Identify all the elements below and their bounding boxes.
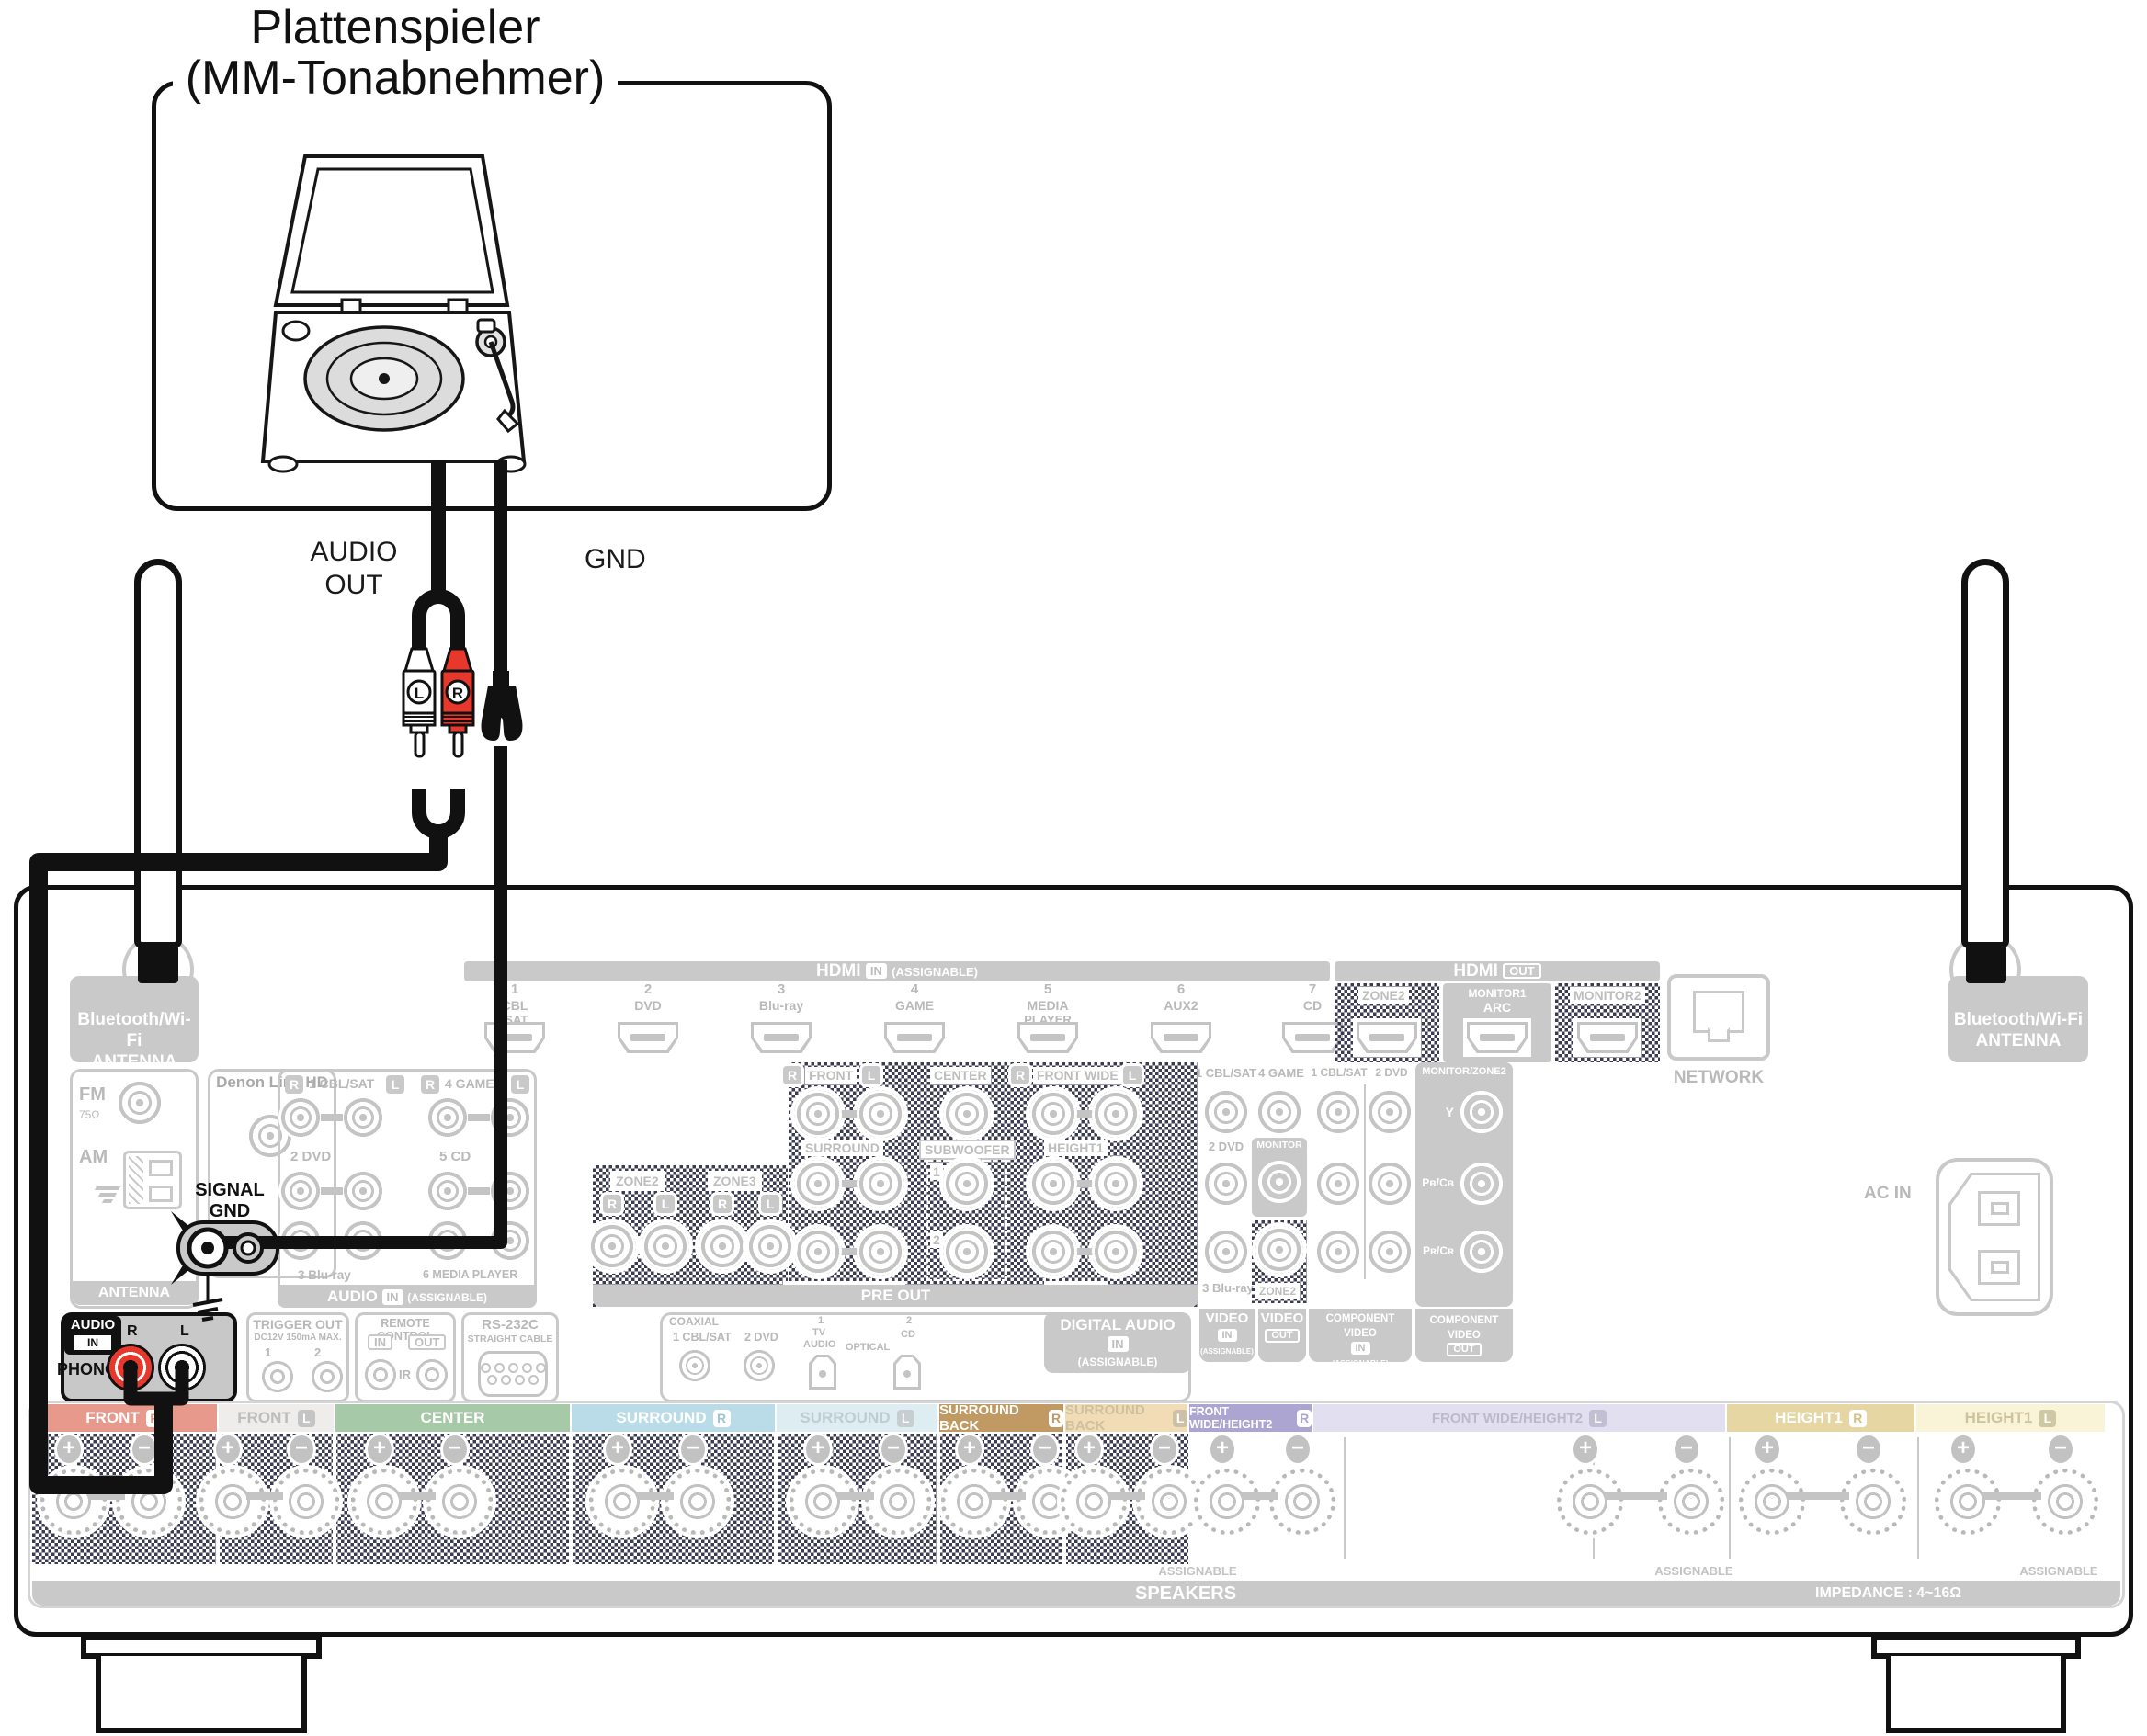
audio-jack — [488, 1169, 532, 1213]
speakers-bar — [32, 1581, 2120, 1606]
zone-jack — [588, 1222, 636, 1270]
hdmi-port-label: CBL — [464, 998, 565, 1013]
compvideo-jack — [1366, 1088, 1414, 1136]
hdmi-in-assignable: (ASSIGNABLE) — [892, 965, 978, 979]
am-terminal-hatch — [129, 1156, 143, 1204]
trigger-jack — [261, 1360, 294, 1393]
remote-jack — [364, 1358, 397, 1391]
minus-mark: − — [443, 1435, 467, 1463]
video-zone2-label: ZONE2 — [1255, 1283, 1300, 1299]
audio-in2-label: 2 DVD — [290, 1149, 331, 1164]
optical-label: OPTICAL — [846, 1342, 890, 1353]
speaker-label-height1-r: HEIGHT1R — [1727, 1404, 1914, 1432]
preout-r-badge: R — [1011, 1066, 1029, 1084]
audio-jack — [426, 1219, 470, 1263]
bt-antenna-label-left: Bluetooth/Wi-Fi ANTENNA — [70, 976, 199, 1062]
optical-2-num: 2 — [906, 1315, 912, 1326]
antenna-base-right — [1966, 945, 2006, 983]
video-monitor-jack — [1255, 1158, 1303, 1206]
preout-jack — [1092, 1228, 1140, 1276]
antenna-rod-left — [134, 559, 182, 948]
video-monitor-label: MONITOR — [1252, 1138, 1307, 1152]
compvideo-pb-label: Pʙ/Cʙ — [1419, 1176, 1454, 1189]
video-game-label: 4 GAME — [1252, 1066, 1311, 1080]
hdmi-port-num: 1 — [478, 981, 551, 997]
video-jack — [1202, 1088, 1250, 1136]
minus-mark: − — [290, 1435, 313, 1463]
zone3-l-badge: L — [761, 1195, 779, 1213]
assignable-label: ASSIGNABLE — [1639, 1564, 1749, 1578]
audio-r-badge: R — [421, 1075, 439, 1094]
video-jack — [1255, 1088, 1303, 1136]
diagram-canvas: Plattenspieler (MM-Tonabnehmer) AUDIO OU… — [0, 0, 2147, 1736]
phono-audio-label: AUDIO — [64, 1316, 121, 1334]
hdmi-in-port-1 — [484, 1022, 545, 1053]
compvideo-in-tab: COMPONENT VIDEO IN (ASSIGNABLE) — [1309, 1309, 1412, 1362]
audio-l-badge: L — [511, 1075, 529, 1094]
hdmi-port-label: MEDIA — [997, 998, 1098, 1013]
preout-zone3-label: ZONE3 — [708, 1171, 762, 1191]
zone-jack — [699, 1222, 746, 1270]
optical-2-cd: CD — [901, 1329, 915, 1340]
phono-audio-tab: AUDIO IN — [64, 1316, 121, 1355]
rs232c-sub: STRAIGHT CABLE — [461, 1333, 559, 1345]
hdmi-in-port-4 — [884, 1022, 945, 1053]
compvideo-out-jack — [1458, 1160, 1505, 1208]
speaker-label-front-r: FRONTR — [32, 1404, 217, 1432]
coaxial-label: COAXIAL — [669, 1315, 719, 1328]
remote-in-badge: IN — [368, 1334, 392, 1350]
am-terminal-clip1 — [149, 1160, 173, 1176]
plus-mark: + — [57, 1435, 81, 1463]
hdmi-in-title: HDMI — [816, 961, 861, 981]
binding-post — [1136, 1469, 1202, 1535]
rca-plug-l: L — [403, 649, 435, 756]
am-terminal-clip2 — [149, 1186, 173, 1202]
compvideo-jack — [1314, 1228, 1362, 1276]
binding-post — [1269, 1469, 1335, 1535]
binding-post — [116, 1469, 182, 1535]
preout-jack — [857, 1160, 904, 1208]
binding-post — [40, 1469, 107, 1535]
hdmi-port-num: 6 — [1144, 981, 1218, 997]
audio-r-badge: R — [285, 1075, 303, 1094]
preout-height1-label: HEIGHT1 — [1044, 1140, 1108, 1156]
hdmi-out-port-zone2 — [1357, 1022, 1417, 1053]
plug-l-letter: L — [415, 685, 424, 702]
digital-audio-tab: DIGITAL AUDIO IN (ASSIGNABLE) — [1044, 1312, 1191, 1373]
plug-r-letter: R — [452, 685, 463, 702]
title-line2: (MM-Tonabnehmer) — [173, 51, 619, 105]
preout-l-badge: L — [1123, 1066, 1142, 1084]
binding-post — [351, 1469, 417, 1535]
zone2-l-badge: L — [656, 1195, 675, 1213]
trigger-2: 2 — [314, 1345, 321, 1359]
speaker-label-surround-l: SURROUNDL — [777, 1404, 937, 1432]
optical-port-1 — [809, 1355, 836, 1390]
remote-out-badge: OUT — [408, 1334, 446, 1350]
hdmi-out-arc-label: ARC — [1443, 1000, 1551, 1015]
audio-jack — [341, 1095, 385, 1140]
preout-jack — [1092, 1160, 1140, 1208]
preout-zone2-label: ZONE2 — [610, 1171, 665, 1191]
video-out-tab: VIDEO OUT — [1258, 1309, 1306, 1362]
phono-jack-l — [158, 1344, 206, 1391]
bt-antenna-label-right: Bluetooth/Wi-Fi ANTENNA — [1948, 976, 2088, 1062]
hdmi-out-title: HDMI — [1453, 961, 1498, 981]
optical-1-audio: AUDIO — [803, 1339, 835, 1350]
compvideo-y-label: Y — [1423, 1105, 1454, 1119]
speaker-label-fwh2-l: FRONT WIDE/HEIGHT2L — [1313, 1404, 1725, 1432]
audio-jack — [278, 1219, 323, 1263]
preout-jack — [1029, 1160, 1077, 1208]
binding-post — [790, 1469, 856, 1535]
fm-label: FM — [79, 1084, 106, 1106]
hdmi-in-port-5 — [1017, 1022, 1078, 1053]
subwoofer-1: 1 — [930, 1163, 943, 1180]
trigger-out-title: TRIGGER OUT — [246, 1317, 349, 1332]
plus-mark: + — [368, 1435, 392, 1463]
plus-mark: + — [1755, 1435, 1779, 1463]
minus-mark: − — [1286, 1435, 1310, 1463]
plus-mark: + — [1951, 1435, 1975, 1463]
binding-post — [273, 1469, 339, 1535]
audio-jack — [488, 1095, 532, 1140]
preout-jack — [857, 1090, 904, 1138]
impedance-label: IMPEDANCE : 4~16Ω — [1815, 1585, 1961, 1602]
zone2-r-badge: R — [603, 1195, 621, 1213]
remote-ir-label: IR — [399, 1367, 411, 1381]
optical-port-2 — [893, 1355, 921, 1390]
plus-mark: + — [216, 1435, 240, 1463]
compvideo-jack — [1366, 1228, 1414, 1276]
minus-mark: − — [1675, 1435, 1698, 1463]
binding-post — [665, 1469, 731, 1535]
coaxial-in1-label: 1 CBL/SAT — [673, 1331, 732, 1344]
minus-mark: − — [881, 1435, 905, 1463]
compvideo-in1-label: 1 CBL/SAT — [1305, 1066, 1373, 1079]
speaker-label-surround-back-r: SURROUND BACKR — [939, 1404, 1063, 1432]
turntable-box — [152, 81, 832, 511]
compvideo-out-jack — [1458, 1088, 1505, 1136]
hdmi-out-port-monitor2 — [1577, 1022, 1638, 1053]
preout-subwoofer-jack2 — [943, 1228, 991, 1276]
spade-ferrule — [493, 671, 509, 687]
audio-jack — [341, 1219, 385, 1263]
plus-mark: + — [806, 1435, 830, 1463]
assignable-label: ASSIGNABLE — [2004, 1564, 2114, 1578]
compvideo-jack — [1314, 1160, 1362, 1208]
antenna-rod-right — [1961, 559, 2009, 948]
compvideo-out-jack — [1458, 1228, 1505, 1276]
audio-jack — [278, 1095, 323, 1140]
binding-post — [1840, 1469, 1906, 1535]
binding-post — [1739, 1469, 1805, 1535]
speaker-label-height1-l: HEIGHT1L — [1916, 1404, 2105, 1432]
compvideo-out-mz-label: MONITOR/ZONE2 — [1415, 1066, 1513, 1077]
speaker-label-surround-back-l: SURROUND BACKL — [1065, 1404, 1187, 1432]
zone-jack — [746, 1222, 794, 1270]
hdmi-in-badge: IN — [866, 963, 887, 979]
compvideo-pr-label: Pʀ/Cʀ — [1419, 1244, 1454, 1257]
hdmi-port-label: DVD — [597, 998, 699, 1013]
binding-post — [1194, 1469, 1260, 1535]
audio-in6-label: 6 MEDIA PLAYER — [423, 1268, 517, 1281]
am-ground-icon — [92, 1184, 123, 1203]
plus-mark: + — [958, 1435, 982, 1463]
preout-subwoofer-label: SUBWOOFER — [919, 1140, 1016, 1160]
digital-in-badge: IN — [1108, 1336, 1129, 1352]
phono-in-badge: IN — [74, 1335, 111, 1350]
preout-jack — [857, 1228, 904, 1276]
phono-l-label: L — [180, 1323, 189, 1340]
minus-mark: − — [1153, 1435, 1176, 1463]
preout-surround-label: SURROUND — [801, 1140, 883, 1156]
binding-post — [1557, 1469, 1623, 1535]
minus-mark: − — [2049, 1435, 2073, 1463]
hdmi-out-monitor1-label: MONITOR1 — [1443, 987, 1551, 1000]
optical-1-num: 1 — [818, 1315, 824, 1326]
audio-in4-label: 4 GAME — [445, 1076, 494, 1091]
plus-mark: + — [606, 1435, 630, 1463]
antenna-bar: ANTENNA — [73, 1281, 196, 1305]
hdmi-in-port-2 — [618, 1022, 678, 1053]
coaxial-in2-label: 2 DVD — [744, 1331, 778, 1344]
plus-mark: + — [1210, 1435, 1234, 1463]
fm-ohm-label: 75Ω — [79, 1108, 99, 1121]
hdmi-port-label: Blu-ray — [731, 998, 832, 1013]
hdmi-out-badge: OUT — [1503, 963, 1540, 979]
title-line1: Plattenspieler — [129, 2, 662, 53]
trigger-1: 1 — [265, 1345, 271, 1359]
minus-mark: − — [1857, 1435, 1880, 1463]
binding-post — [865, 1469, 931, 1535]
video-zone2-jack — [1255, 1226, 1303, 1274]
rca-plug-r: R — [442, 649, 473, 756]
hdmi-in-port-3 — [751, 1022, 812, 1053]
preout-l-badge: L — [862, 1066, 880, 1084]
ac-in-label: AC IN — [1864, 1184, 1912, 1204]
binding-post — [941, 1469, 1007, 1535]
preout-jack — [1092, 1090, 1140, 1138]
preout-r-badge: R — [783, 1066, 801, 1084]
trigger-out-sub: DC12V 150mA MAX. — [246, 1333, 349, 1343]
gnd-label: GND — [585, 544, 695, 575]
hdmi-port-num: 4 — [878, 981, 951, 997]
network-label: NETWORK — [1667, 1068, 1770, 1088]
plus-mark: + — [1077, 1435, 1101, 1463]
compvideo-in2-label: 2 DVD — [1368, 1066, 1415, 1079]
hdmi-out-bar: HDMI OUT — [1335, 961, 1660, 981]
audio-l-badge: L — [386, 1075, 404, 1094]
rs232c-title: RS-232C — [461, 1317, 559, 1333]
audio-jack — [426, 1169, 470, 1213]
speaker-label-fwh2-r: FRONT WIDE/HEIGHT2R — [1189, 1404, 1312, 1432]
preout-jack — [1029, 1228, 1077, 1276]
audio-jack — [488, 1219, 532, 1263]
binding-post — [426, 1469, 493, 1535]
hdmi-out-zone2-label: ZONE2 — [1358, 987, 1409, 1004]
phono-jack-r — [107, 1344, 154, 1391]
receiver-foot-left-body — [96, 1656, 307, 1733]
binding-post — [1061, 1469, 1127, 1535]
assignable-label: ASSIGNABLE — [1142, 1564, 1253, 1578]
hdmi-port-num: 2 — [611, 981, 685, 997]
binding-post — [2032, 1469, 2098, 1535]
coaxial-jack — [741, 1347, 778, 1384]
ac-prong-1-inner — [1991, 1202, 2009, 1215]
coaxial-jack — [676, 1347, 713, 1384]
ac-prong-2-inner — [1991, 1261, 2009, 1274]
audio-jack — [426, 1095, 470, 1140]
audio-in1-label: 1 CBL/SAT — [309, 1076, 374, 1091]
network-port-notch — [1708, 1027, 1730, 1042]
optical-1-tv: TV — [812, 1327, 825, 1338]
minus-mark: − — [132, 1435, 156, 1463]
hdmi-port-label: GAME — [864, 998, 965, 1013]
plus-mark: + — [1573, 1435, 1597, 1463]
preout-jack — [794, 1228, 842, 1276]
page-title: Plattenspieler — [129, 2, 662, 53]
antenna-base-left — [138, 945, 178, 983]
hdmi-port-label: AUX2 — [1130, 998, 1232, 1013]
audio-jack — [278, 1169, 323, 1213]
hdmi-port-num: 3 — [744, 981, 818, 997]
remote-jack — [415, 1358, 449, 1391]
zone-jack — [642, 1222, 689, 1270]
receiver-foot-right-body — [1886, 1656, 2066, 1733]
video-jack — [1202, 1160, 1250, 1208]
fm-antenna-jack — [116, 1079, 164, 1127]
video-jack — [1202, 1228, 1250, 1276]
compvideo-out-tab: COMPONENT VIDEO OUT — [1415, 1309, 1513, 1362]
binding-post — [199, 1469, 266, 1535]
hdmi-in-bar: HDMI IN (ASSIGNABLE) — [464, 961, 1330, 981]
trigger-jack — [311, 1360, 344, 1393]
audio-out-label: AUDIO OUT — [276, 536, 432, 602]
preout-bar: PRE OUT — [593, 1285, 1198, 1307]
preout-front-wide-label: FRONT WIDE — [1033, 1067, 1122, 1084]
subwoofer-2: 2 — [930, 1231, 943, 1248]
phono-r-label: R — [127, 1323, 138, 1340]
am-label: AM — [79, 1147, 108, 1168]
hdmi-out-monitor2-label: MONITOR2 — [1570, 987, 1645, 1004]
minus-mark: − — [1033, 1435, 1057, 1463]
binding-post — [1658, 1469, 1724, 1535]
compvideo-jack — [1366, 1160, 1414, 1208]
hdmi-in-port-6 — [1151, 1022, 1211, 1053]
preout-center-label: CENTER — [930, 1067, 991, 1084]
audio-in-bar: AUDIO IN (ASSIGNABLE) — [278, 1285, 537, 1308]
preout-jack — [1029, 1090, 1077, 1138]
rs232c-connector — [478, 1351, 548, 1397]
binding-post — [589, 1469, 655, 1535]
video-in2-label: 2 DVD — [1198, 1140, 1254, 1153]
preout-jack — [794, 1090, 842, 1138]
video-in-tab: VIDEO IN (ASSIGNABLE) — [1199, 1309, 1255, 1362]
audio-in3-label: 3 Blu-ray — [298, 1268, 351, 1282]
preout-jack — [943, 1090, 991, 1138]
speaker-label-front-l: FRONTL — [219, 1404, 334, 1432]
preout-front-label: FRONT — [805, 1067, 857, 1084]
audio-jack — [341, 1169, 385, 1213]
hdmi-out-port-monitor1 — [1467, 1022, 1528, 1053]
zone3-r-badge: R — [713, 1195, 732, 1213]
speakers-bar-label: SPEAKERS — [1135, 1583, 1236, 1605]
compvideo-jack — [1314, 1088, 1362, 1136]
speaker-label-surround-r: SURROUNDR — [572, 1404, 775, 1432]
preout-subwoofer-jack — [943, 1160, 991, 1208]
speaker-label-center: CENTER — [335, 1404, 570, 1432]
spade-connector — [482, 686, 523, 741]
preout-jack — [794, 1160, 842, 1208]
binding-post — [1935, 1469, 2001, 1535]
signal-gnd-label: SIGNAL GND — [176, 1180, 283, 1222]
minus-mark: − — [681, 1435, 705, 1463]
hdmi-port-num: 5 — [1011, 981, 1085, 997]
audio-in5-label: 5 CD — [439, 1149, 471, 1164]
